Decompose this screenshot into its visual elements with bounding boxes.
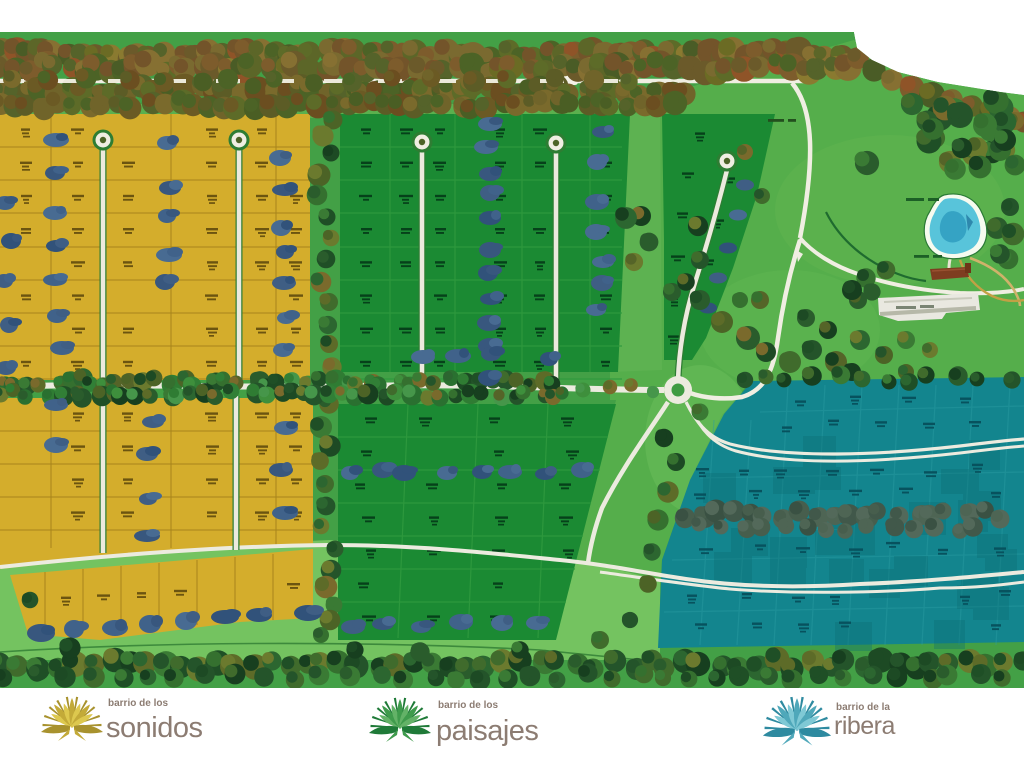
svg-text:barrio de los: barrio de los xyxy=(438,700,498,711)
svg-text:ribera: ribera xyxy=(834,712,896,740)
svg-text:paisajes: paisajes xyxy=(436,715,538,747)
svg-text:sonidos: sonidos xyxy=(106,712,202,744)
svg-text:barrio de los: barrio de los xyxy=(108,698,168,709)
